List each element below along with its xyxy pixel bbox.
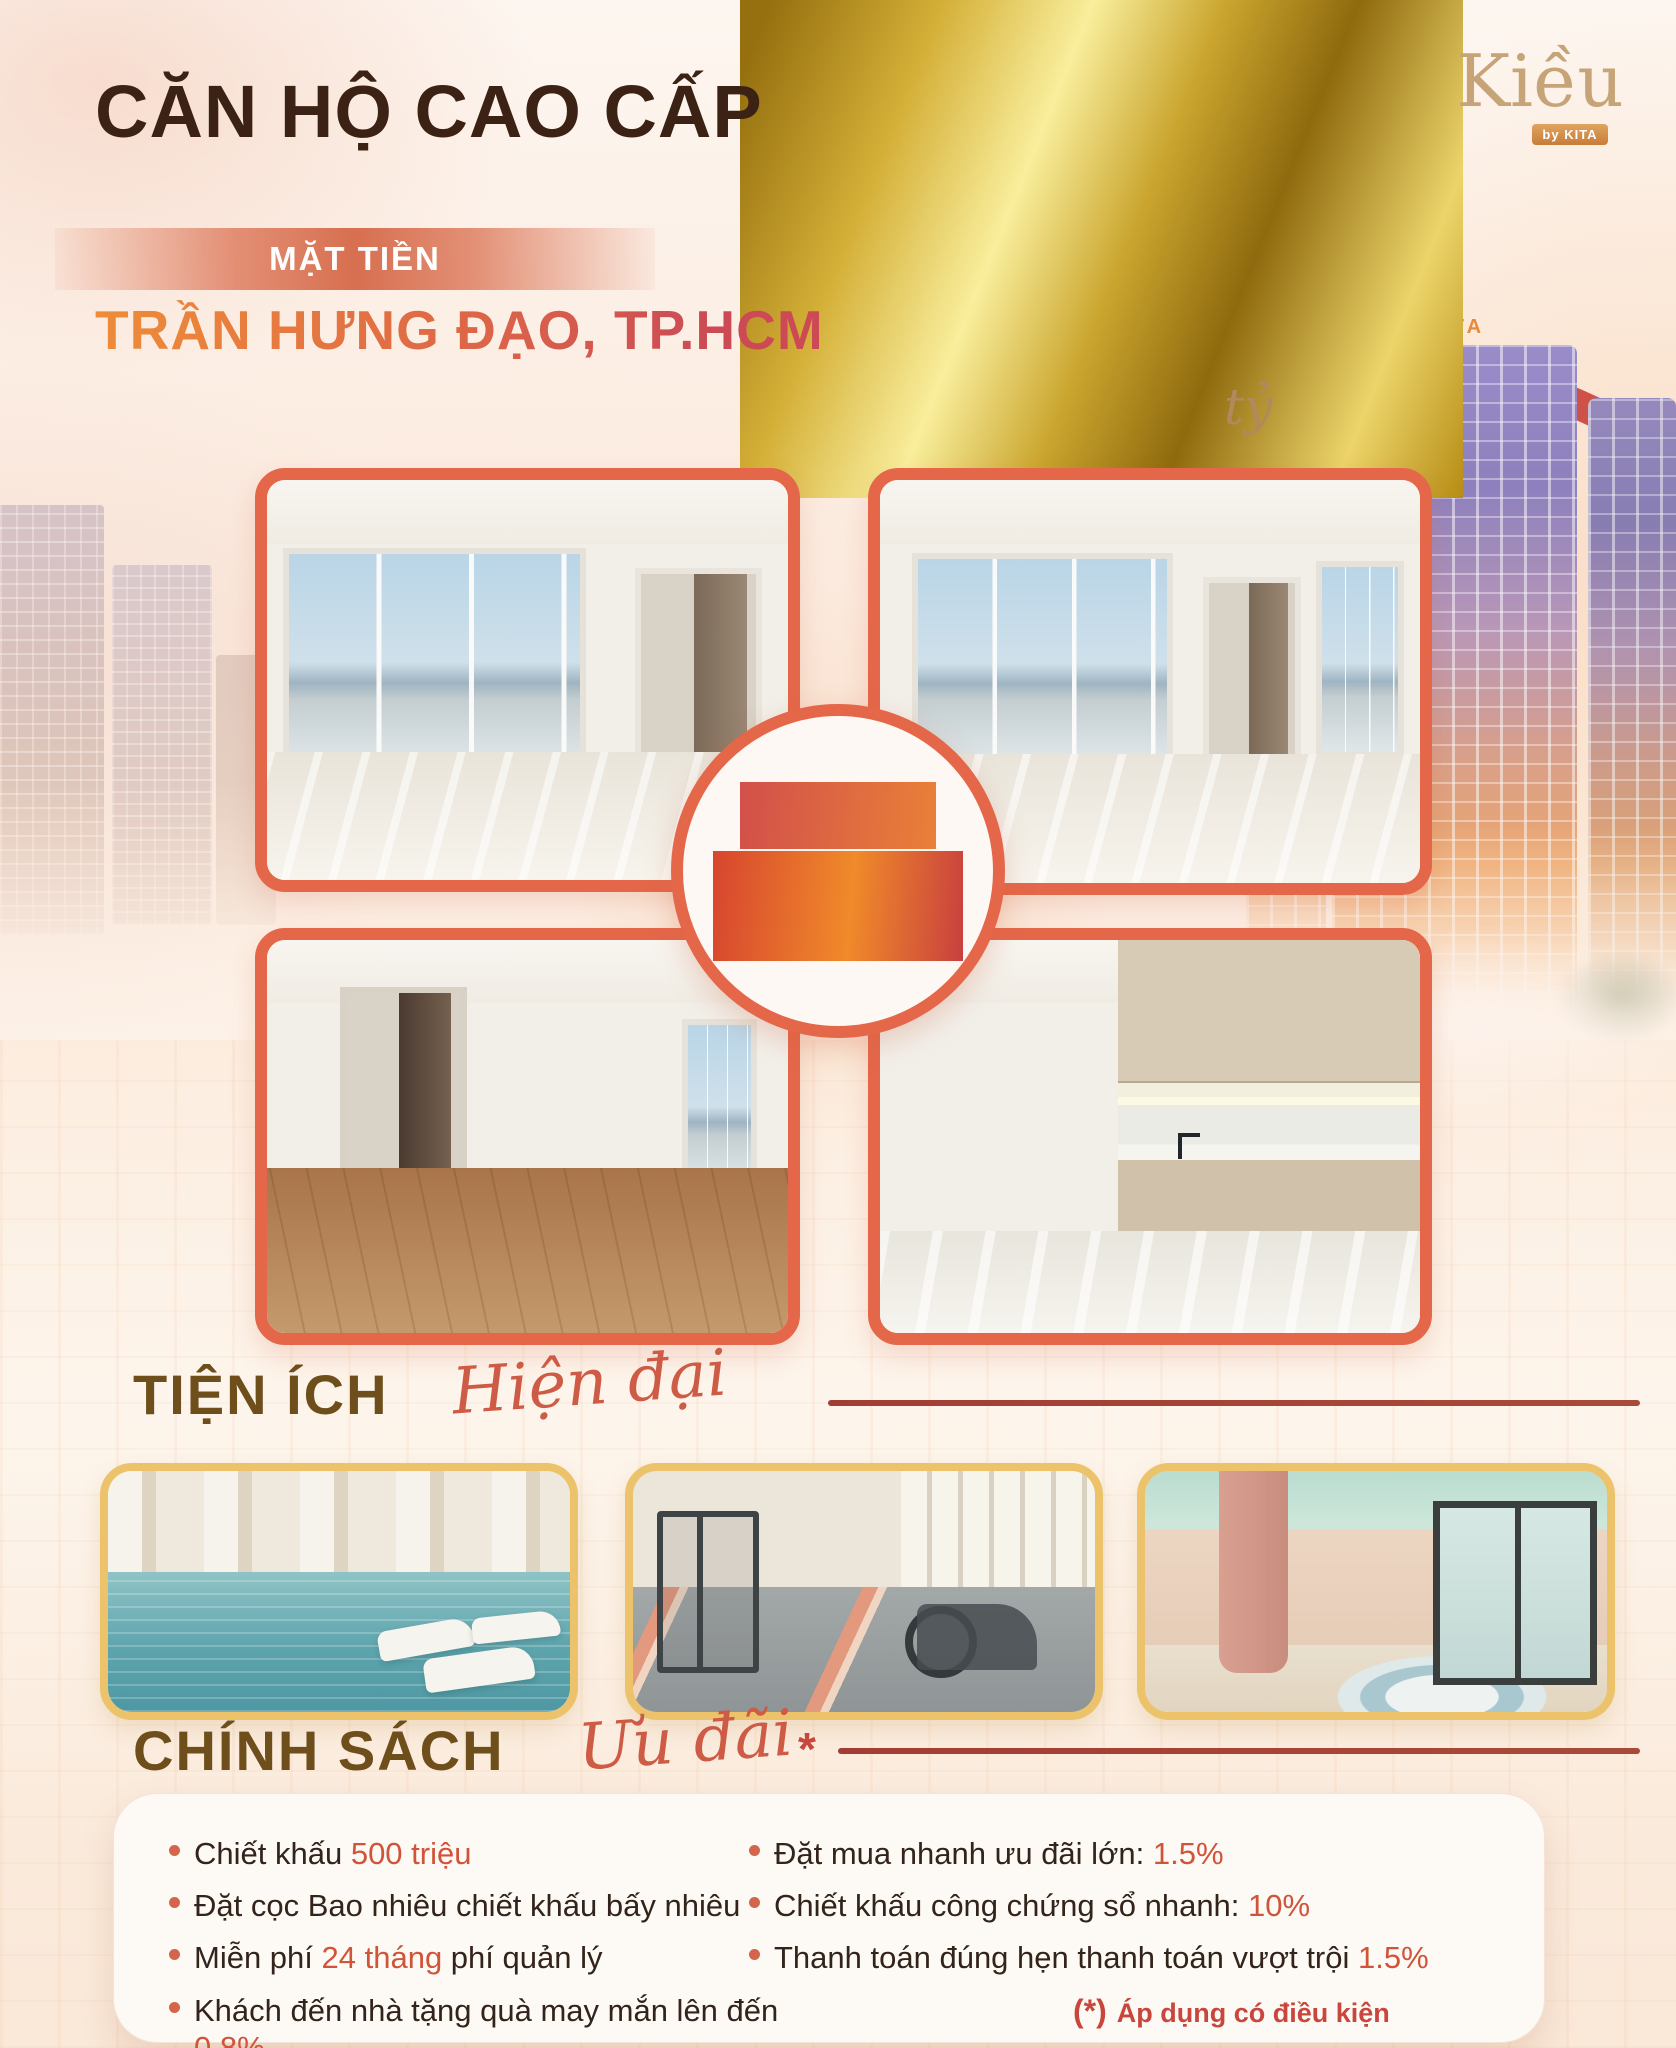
photo-floor bbox=[880, 1231, 1420, 1333]
apartment-photo-bedroom-wood-floor bbox=[255, 928, 800, 1345]
policy-divider-line bbox=[838, 1748, 1640, 1754]
doorway bbox=[1203, 577, 1301, 774]
bullet-dot-icon bbox=[169, 2002, 180, 2013]
policy-list-left: Chiết khấu 500 triệu Đặt cọc Bao nhiêu c… bbox=[169, 1835, 779, 2048]
policy-list-right: Đặt mua nhanh ưu đãi lớn: 1.5% Chiết khấ… bbox=[749, 1835, 1509, 1977]
policy-script: Ưu đãi bbox=[576, 1697, 796, 1786]
gym-treadmill bbox=[917, 1604, 1037, 1670]
bullet-dot-icon bbox=[749, 1949, 760, 1960]
street-subtitle: TRẦN HƯNG ĐẠO, TP.HCM bbox=[95, 298, 824, 362]
gym-machine bbox=[657, 1511, 759, 1673]
price-unit: tỷ bbox=[1224, 378, 1272, 436]
policy-item: Đặt mua nhanh ưu đãi lớn: 1.5% bbox=[749, 1835, 1509, 1872]
kitchen-faucet bbox=[1178, 1133, 1182, 1159]
policy-card: Chiết khấu 500 triệu Đặt cọc Bao nhiêu c… bbox=[113, 1793, 1545, 2043]
frontage-badge-label: MẶT TIỀN bbox=[269, 240, 441, 278]
bullet-dot-icon bbox=[169, 1949, 180, 1960]
policy-item: Đặt cọc Bao nhiêu chiết khấu bấy nhiêu bbox=[169, 1887, 779, 1924]
policy-item: Chiết khấu 500 triệu bbox=[169, 1835, 779, 1872]
frontage-badge: MẶT TIỀN bbox=[55, 228, 655, 290]
policy-asterisk: * bbox=[798, 1722, 816, 1776]
real-estate-poster: KITA CĂN HỘ CAO CẤP MẶT TIỀN TRẦN HƯNG Đ… bbox=[0, 0, 1676, 2048]
bullet-dot-icon bbox=[749, 1897, 760, 1908]
policy-item: Miễn phí 24 tháng phí quản lý bbox=[169, 1939, 779, 1976]
playroom-glass-door bbox=[1433, 1501, 1597, 1685]
brand-byline-badge: by KITA bbox=[1532, 124, 1607, 145]
policy-item: Khách đến nhà tặng quà may mắn lên đến 0… bbox=[169, 1992, 779, 2048]
window-city-view bbox=[912, 553, 1172, 767]
photo-ceiling bbox=[267, 480, 788, 544]
amenity-photo-kids-playroom bbox=[1137, 1463, 1615, 1720]
policy-item: Chiết khấu công chứng sổ nhanh: 10% bbox=[749, 1887, 1509, 1924]
amenity-photo-gym bbox=[625, 1463, 1103, 1720]
page-title: CĂN HỘ CAO CẤP bbox=[95, 68, 763, 157]
note-text: Áp dụng có điều kiện bbox=[1117, 1998, 1390, 2028]
amenities-divider-line bbox=[828, 1400, 1640, 1406]
area-badge-circle: Căn hộ 90m2 bbox=[671, 704, 1005, 1038]
note-marker: (*) bbox=[1073, 1993, 1107, 2029]
policy-heading: CHÍNH SÁCH bbox=[133, 1718, 505, 1783]
amenity-photo-pool bbox=[100, 1463, 578, 1720]
amenities-heading: TIỆN ÍCH bbox=[133, 1362, 389, 1427]
pool-water bbox=[108, 1572, 570, 1712]
wood-floor bbox=[267, 1168, 788, 1333]
policy-item: Thanh toán đúng hẹn thanh toán vượt trội… bbox=[749, 1939, 1509, 1976]
photo-ceiling bbox=[880, 480, 1420, 544]
window bbox=[682, 1019, 757, 1188]
brand-logo: Kiều by KITA bbox=[1455, 36, 1625, 145]
bullet-dot-icon bbox=[169, 1845, 180, 1856]
brand-name: Kiều bbox=[1455, 36, 1625, 126]
area-badge-line2: 90m2 bbox=[713, 851, 963, 961]
window-city-view bbox=[283, 548, 587, 768]
bullet-dot-icon bbox=[169, 1897, 180, 1908]
window-city-view bbox=[1316, 561, 1404, 758]
price-number: 12 bbox=[740, 0, 1463, 498]
policy-conditions-note: (*)Áp dụng có điều kiện bbox=[1073, 1993, 1390, 2030]
playroom-column bbox=[1219, 1471, 1288, 1673]
bullet-dot-icon bbox=[749, 1845, 760, 1856]
area-badge-line1: Căn hộ bbox=[740, 782, 937, 849]
